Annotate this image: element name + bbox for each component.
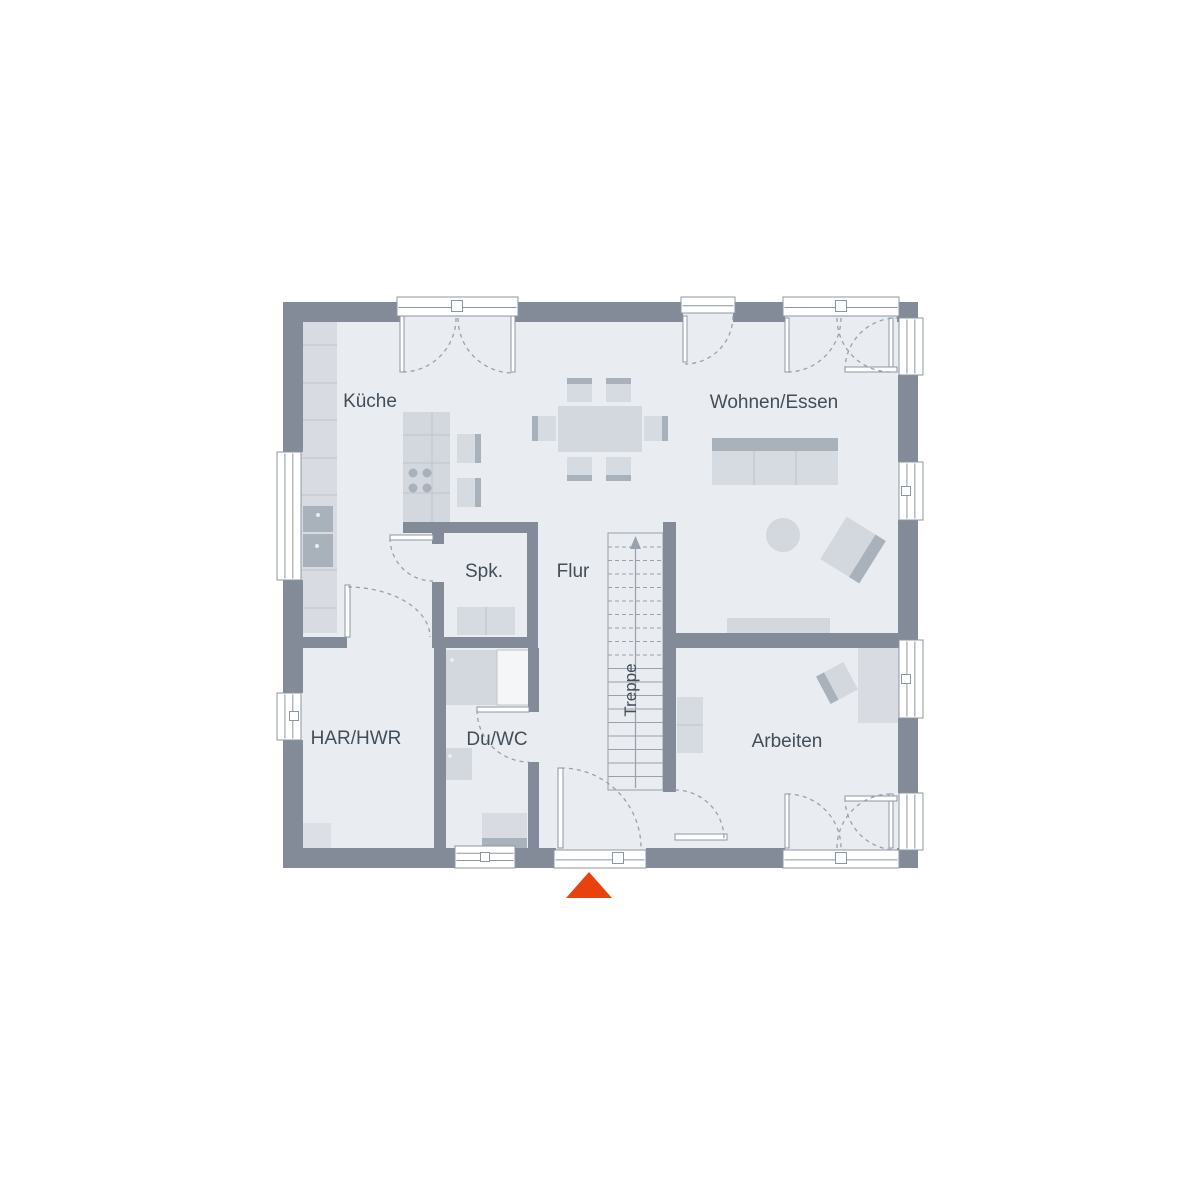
kitchen-counter: [298, 308, 337, 633]
oven: [303, 534, 333, 567]
door-handle-icon: [836, 853, 847, 864]
fixture-dot: [448, 754, 452, 758]
door-leaf: [675, 834, 727, 840]
room-label-treppe: Treppe: [621, 663, 640, 716]
window: [277, 452, 301, 580]
door-leaf: [785, 794, 789, 848]
dining-table: [558, 406, 642, 452]
stool-back: [475, 434, 481, 463]
chair-back: [606, 378, 631, 384]
sideboard: [727, 618, 830, 633]
washbasin: [482, 813, 527, 838]
wall-segment: [898, 302, 918, 318]
window: [899, 318, 923, 375]
door-leaf: [390, 535, 433, 540]
chair-back: [606, 475, 631, 481]
chair-back: [532, 416, 538, 441]
wall-segment: [283, 848, 455, 868]
burner: [423, 484, 432, 493]
oven: [303, 506, 333, 532]
floor-plan-svg: KücheWohnen/EssenSpk.FlurHAR/HWRDu/WCArb…: [0, 0, 1200, 1200]
door-leaf: [889, 794, 893, 848]
burner: [423, 469, 432, 478]
door-frame: [554, 850, 646, 868]
floor-plan-page: KücheWohnen/EssenSpk.FlurHAR/HWRDu/WCArb…: [0, 0, 1200, 1200]
burner: [409, 469, 418, 478]
sofa: [712, 451, 838, 485]
shower-glass: [497, 650, 529, 705]
entrance-arrow-icon: [566, 872, 612, 898]
wall-segment: [515, 848, 556, 868]
room-label-kueche: Küche: [343, 391, 397, 412]
door-handle-icon: [836, 301, 847, 312]
door-handle-icon: [452, 301, 463, 312]
wall-segment: [432, 637, 538, 648]
wall-segment: [283, 740, 303, 868]
floor-area: [283, 302, 918, 868]
room-label-flur: Flur: [557, 561, 590, 582]
wall-segment: [898, 850, 918, 868]
room-label-har-hwr: HAR/HWR: [311, 728, 402, 749]
door-frame: [681, 297, 735, 313]
window: [899, 793, 923, 850]
room-label-spk: Spk.: [465, 561, 503, 582]
desk: [858, 647, 900, 723]
wall-segment: [303, 637, 347, 648]
wall-segment: [898, 520, 918, 640]
room-label-arbeiten: Arbeiten: [752, 731, 823, 752]
window-handle-icon: [481, 853, 490, 862]
wall-segment: [527, 522, 538, 648]
wall-segment: [898, 375, 918, 462]
wall-segment: [898, 718, 918, 793]
wall-segment: [515, 302, 683, 322]
room-label-wohnen-essen: Wohnen/Essen: [710, 392, 839, 413]
door-leaf: [889, 318, 893, 372]
toilet: [442, 748, 472, 780]
wall-segment: [528, 648, 539, 712]
window-handle-icon: [902, 675, 911, 684]
sofa-back: [712, 438, 838, 451]
wall-segment: [403, 522, 537, 533]
wall-segment: [646, 848, 785, 868]
window-handle-icon: [290, 712, 299, 721]
door-handle-icon: [613, 853, 624, 864]
wall-segment: [733, 302, 785, 322]
coffee-table: [766, 518, 800, 552]
fixture-dot: [450, 658, 454, 662]
door-leaf: [477, 707, 529, 712]
door-leaf: [558, 768, 563, 848]
burner: [409, 484, 418, 493]
wall-segment: [676, 633, 918, 648]
door-leaf: [345, 585, 350, 637]
window-handle-icon: [902, 487, 911, 496]
chair-back: [662, 416, 668, 441]
wall-segment: [434, 648, 446, 848]
door-leaf: [511, 316, 515, 372]
wall-segment: [283, 302, 303, 452]
chair-back: [567, 475, 592, 481]
wall-segment: [663, 522, 676, 792]
kitchen-island: [403, 412, 450, 522]
appliance-dot: [316, 513, 320, 517]
door-leaf: [845, 796, 897, 801]
chair-back: [567, 378, 592, 384]
wall-segment: [528, 762, 539, 848]
stool-back: [475, 478, 481, 507]
room-label-du-wc: Du/WC: [466, 729, 527, 750]
shower: [442, 650, 497, 705]
wall-segment: [283, 580, 303, 693]
door-leaf: [785, 318, 789, 372]
door-leaf: [683, 316, 687, 362]
appliance-dot: [315, 544, 319, 548]
door-leaf: [400, 316, 404, 372]
wall-segment: [432, 530, 444, 544]
